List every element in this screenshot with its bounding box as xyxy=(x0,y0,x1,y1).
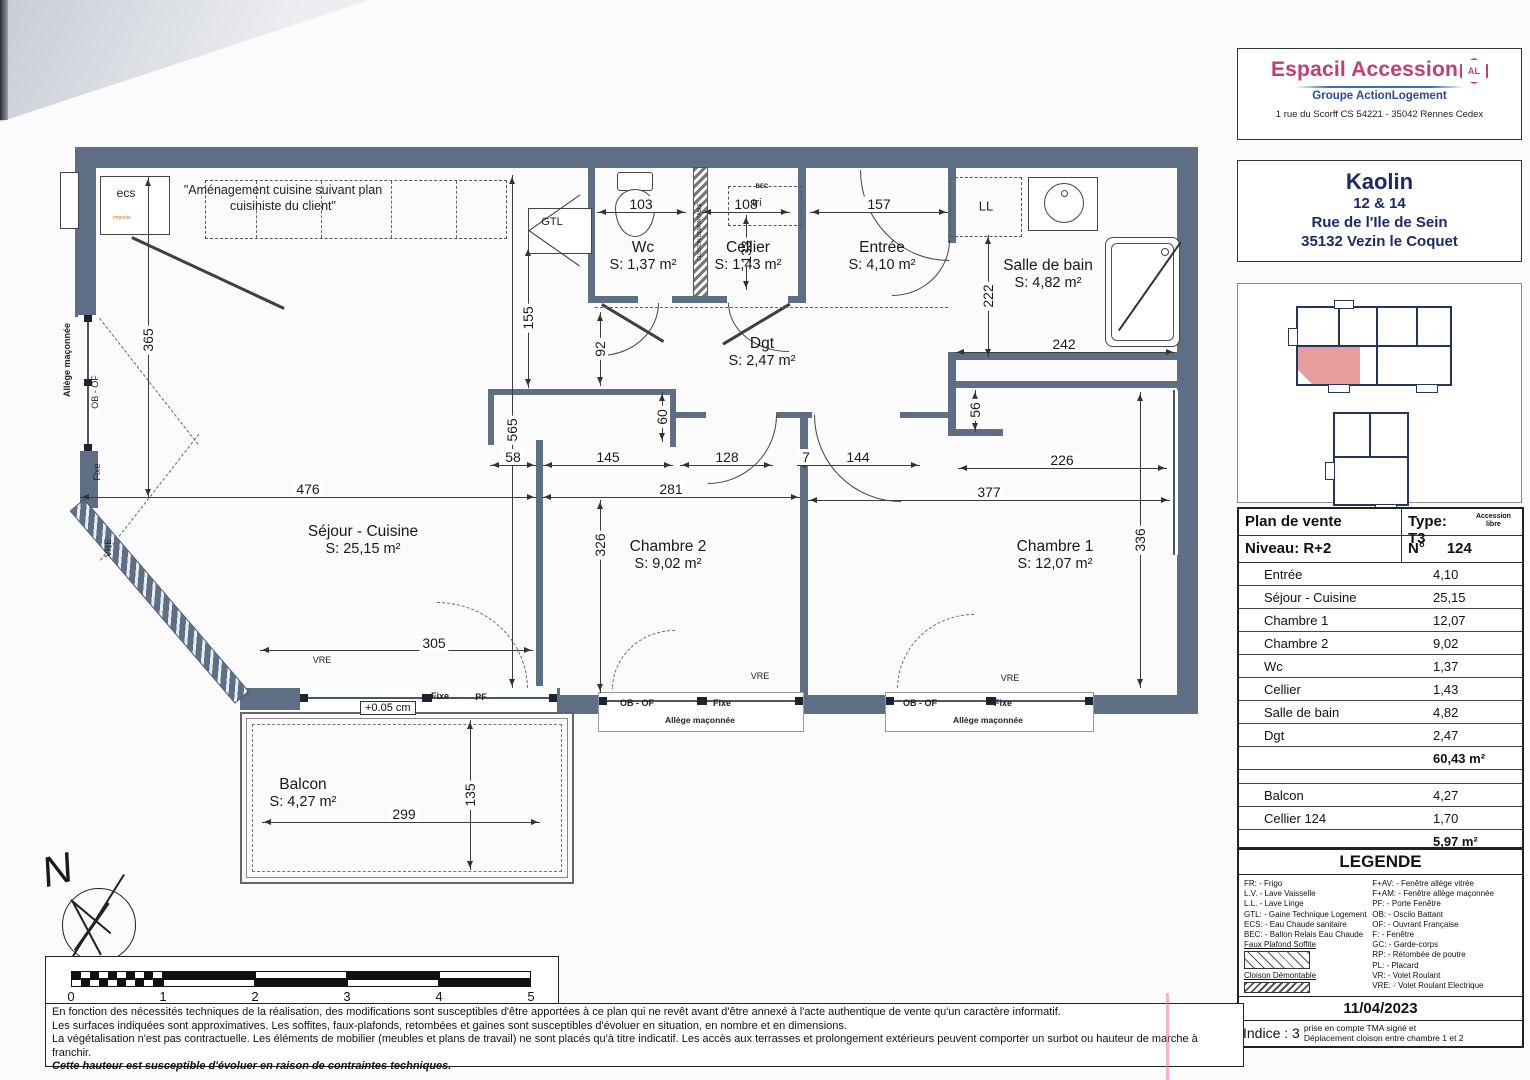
scale-tick: 2 xyxy=(251,989,258,1004)
room-label-cell: Salle de bain xyxy=(1239,705,1419,720)
legend-item: OF: - Ouvrant Française xyxy=(1372,920,1517,930)
plan-tag: OB - OF xyxy=(90,375,100,409)
room-name: Séjour - Cuisine xyxy=(308,523,418,541)
room-value-cell: 1,37 xyxy=(1419,659,1522,674)
wall-diagonal xyxy=(71,500,248,702)
legend-item: L.V. - Lave Vaisselle xyxy=(1244,889,1372,899)
door-arc-pf-chambre1 xyxy=(897,614,974,689)
dimension-line xyxy=(810,212,948,213)
room-name: Dgt xyxy=(729,335,796,353)
legend-sample-label: Cloison Démontable xyxy=(1244,971,1372,981)
table-row: Entrée4,10 xyxy=(1239,563,1522,586)
plan-tag: imposte xyxy=(113,215,131,221)
partition xyxy=(676,412,706,418)
dimension-line xyxy=(490,465,536,466)
dimension-label: 281 xyxy=(656,481,685,497)
shower-tray xyxy=(1105,237,1180,347)
room-area: S: 4,27 m² xyxy=(270,794,337,810)
legend-left-column: FR: - FrigoL.V. - Lave VaisselleL.L. - L… xyxy=(1244,879,1372,994)
dimension-line xyxy=(797,465,920,466)
compass-icon xyxy=(62,888,136,962)
legend-item: BEC: - Ballon Relais Eau Chaude xyxy=(1244,930,1372,940)
room-label: EntréeS: 4,10 m² xyxy=(849,239,916,273)
plan-tag: ecs xyxy=(117,186,136,200)
room-area: S: 25,15 m² xyxy=(308,541,418,557)
scale-tick: 5 xyxy=(527,989,534,1004)
dimension-label: 92 xyxy=(592,338,608,360)
legend-right-column: F+AV: - Fenêtre allège vitréeF+AM: - Fen… xyxy=(1372,879,1517,994)
room-label-cell: Entrée xyxy=(1239,567,1419,582)
door-leaf-ecs xyxy=(131,236,284,309)
disclaimer-line: Cette hauteur est susceptible d'évoluer … xyxy=(52,1060,1237,1074)
partition xyxy=(588,296,638,303)
dimension-label: 135 xyxy=(462,780,478,809)
disclaimer-line: Les surfaces indiquées sont approximativ… xyxy=(52,1020,1237,1034)
plan-tag: Fixe xyxy=(431,691,449,701)
revision-index: Indice : 3 xyxy=(1243,1025,1300,1041)
dimension-label: 144 xyxy=(843,449,872,465)
room-value-cell: 25,15 xyxy=(1419,590,1522,605)
plan-tag: VRE xyxy=(751,671,770,681)
dimension-label: 157 xyxy=(864,196,893,212)
dimension-label: 58 xyxy=(502,449,524,465)
room-area: S: 4,82 m² xyxy=(1003,275,1093,291)
room-label: Salle de bainS: 4,82 m² xyxy=(1003,257,1093,291)
sale-table: Plan de vente Type: T3 Accession libre N… xyxy=(1237,507,1524,849)
keyplan-highlighted-unit xyxy=(1298,346,1360,384)
north-letter: N xyxy=(37,843,78,897)
legend-item: VR: - Volet Roulant xyxy=(1372,971,1517,981)
room-label-cell: Séjour - Cuisine xyxy=(1239,590,1419,605)
plan-tag: Allège maçonnée xyxy=(953,715,1023,725)
table-row: 60,43 m² xyxy=(1239,747,1522,770)
table-row: Cellier1,43 xyxy=(1239,678,1522,701)
partition xyxy=(670,389,676,447)
dimension-line xyxy=(808,500,1170,501)
agency-group: Groupe ActionLogement xyxy=(1238,90,1521,102)
legend-item: F: - Fenêtre xyxy=(1372,930,1517,940)
dimension-line xyxy=(680,465,773,466)
scale-tick: 0 xyxy=(67,989,74,1004)
dimension-label: 299 xyxy=(389,806,418,822)
project-numbers: 12 & 14 xyxy=(1238,195,1521,214)
table-row: Salle de bain4,82 xyxy=(1239,701,1522,724)
room-value-cell: 4,10 xyxy=(1419,567,1522,582)
room-name: Wc xyxy=(610,239,677,257)
plan-tag: Fixe xyxy=(994,698,1012,708)
room-value-cell: 60,43 m² xyxy=(1419,751,1522,766)
wall xyxy=(75,147,1198,168)
gtl-closet xyxy=(528,208,592,254)
sale-table-subheader: Niveau: R+2 N° 124 xyxy=(1239,536,1522,563)
ecs-closet xyxy=(100,176,170,235)
unit-number-label: N° xyxy=(1408,540,1425,557)
dimension-label: 56 xyxy=(967,399,983,421)
plan-tag: OB - OF xyxy=(620,698,654,708)
dimension-label: 7 xyxy=(799,449,813,465)
partition xyxy=(707,296,727,303)
plan-tag: OB - OF xyxy=(903,698,937,708)
room-name: Chambre 2 xyxy=(630,538,707,556)
legend-item: L.L. - Lave Linge xyxy=(1244,899,1372,909)
table-row: Wc1,37 xyxy=(1239,655,1522,678)
partition xyxy=(672,296,707,303)
wall xyxy=(1177,147,1198,713)
plan-tag: VRE xyxy=(313,655,332,665)
partition xyxy=(948,352,1178,360)
plan-tag: VRE xyxy=(1001,673,1020,683)
agency-address: 1 rue du Scorff CS 54221 - 35042 Rennes … xyxy=(1238,109,1521,120)
room-value-cell: 4,82 xyxy=(1419,705,1522,720)
legend-title: LEGENDE xyxy=(1239,850,1522,875)
partition xyxy=(948,352,956,436)
scale-bar: 012345 xyxy=(45,956,559,1008)
dimension-line xyxy=(262,822,540,823)
door-arc-wc xyxy=(600,303,659,356)
room-value-cell: 4,27 xyxy=(1419,788,1522,803)
scale-tick: 4 xyxy=(435,989,442,1004)
soffit-hatch-swatch xyxy=(1244,951,1310,969)
legend-box: LEGENDE FR: - FrigoL.V. - Lave Vaisselle… xyxy=(1237,848,1524,1048)
project-street: Rue de l'Ile de Sein xyxy=(1238,214,1521,233)
table-row: Séjour - Cuisine25,15 xyxy=(1239,586,1522,609)
room-area: S: 9,02 m² xyxy=(630,556,707,572)
legend-item: FR: - Frigo xyxy=(1244,879,1372,889)
room-label: Séjour - CuisineS: 25,15 m² xyxy=(308,523,418,557)
level-mark: +0.05 cm xyxy=(360,701,416,715)
unit-number: 124 xyxy=(1447,540,1472,557)
floor-plan-page: "Aménagement cuisine suivant plancuisini… xyxy=(0,0,1530,1080)
room-name: Chambre 1 xyxy=(1017,538,1094,556)
legend-item: F+AV: - Fenêtre allège vitrée xyxy=(1372,879,1517,889)
room-label-cell: Dgt xyxy=(1239,728,1419,743)
dimension-label: 476 xyxy=(293,481,322,497)
room-name: Entrée xyxy=(849,239,916,257)
plan-tag: Fixe xyxy=(713,698,731,708)
plan-tag: tri xyxy=(752,197,761,209)
disclaimer-box: En fonction des nécessités techniques de… xyxy=(45,1003,1244,1067)
plan-tag: PF xyxy=(475,692,487,702)
legend-item: ECS: - Eau Chaude sanitaire xyxy=(1244,920,1372,930)
legend-item: PF: - Porte Fenêtre xyxy=(1372,899,1517,909)
revision-row: Indice : 3 prise en compte TMA signé et … xyxy=(1239,1020,1522,1045)
legend-item: VRE: - Volet Roulant Electrique xyxy=(1372,981,1517,991)
sale-table-header: Plan de vente Type: T3 Accession libre xyxy=(1239,509,1522,536)
room-label-cell: Cellier xyxy=(1239,682,1419,697)
room-area: S: 1,43 m² xyxy=(715,257,782,273)
table-row: Balcon4,27 xyxy=(1239,784,1522,807)
room-value-cell: 12,07 xyxy=(1419,613,1522,628)
dimension-line xyxy=(958,468,1167,469)
scan-fold-artifact xyxy=(0,0,380,130)
window-right xyxy=(1170,390,1178,555)
room-label-cell: Chambre 1 xyxy=(1239,613,1419,628)
legend-item: RP: - Rétombée de poutre xyxy=(1372,950,1517,960)
room-label: Chambre 1S: 12,07 m² xyxy=(1017,538,1094,572)
plan-tag: Allège maçonnée xyxy=(665,715,735,725)
room-area: S: 2,47 m² xyxy=(729,353,796,369)
room-label: WcS: 1,37 m² xyxy=(610,239,677,273)
sale-table-title: Plan de vente xyxy=(1239,509,1402,535)
agency-name: Espacil AccessionAL xyxy=(1238,58,1521,84)
sale-level: Niveau: R+2 xyxy=(1239,536,1402,562)
partition xyxy=(536,440,543,696)
window-sejour xyxy=(300,686,557,712)
room-label: BalconS: 4,27 m² xyxy=(270,776,337,810)
dimension-label: 226 xyxy=(1047,452,1076,468)
dimension-label: 365 xyxy=(140,325,156,354)
scale-tick: 3 xyxy=(343,989,350,1004)
dimension-label: 305 xyxy=(419,635,448,651)
scale-tick: 1 xyxy=(159,989,166,1004)
table-row: Chambre 29,02 xyxy=(1239,632,1522,655)
demountable-partition-swatch xyxy=(1244,982,1310,993)
dimension-line xyxy=(597,212,686,213)
duct-box xyxy=(60,172,79,229)
plan-tag: LL xyxy=(979,199,993,214)
room-label: DgtS: 2,47 m² xyxy=(729,335,796,369)
dimension-label: 222 xyxy=(980,281,996,310)
dimension-label: 103 xyxy=(626,196,655,212)
room-name: Salle de bain xyxy=(1003,257,1093,275)
legend-item: OB: - Oscilo Battant xyxy=(1372,910,1517,920)
legend-item: F+AM: - Fenêtre allège maçonnée xyxy=(1372,889,1517,899)
agency-badge-icon: AL xyxy=(1460,58,1488,84)
disclaimer-line: En fonction des nécessités techniques de… xyxy=(52,1006,1237,1020)
legend-item: PL: - Placard xyxy=(1372,961,1517,971)
partition xyxy=(488,389,494,445)
partition xyxy=(488,389,676,395)
dimension-label: 326 xyxy=(592,530,608,559)
project-name: Kaolin xyxy=(1238,169,1521,195)
room-label-cell: Chambre 2 xyxy=(1239,636,1419,651)
agency-logo-box: Espacil AccessionAL Groupe ActionLogemen… xyxy=(1237,48,1522,140)
table-row: Chambre 112,07 xyxy=(1239,609,1522,632)
scan-pink-streak xyxy=(1166,993,1169,1080)
room-name: Balcon xyxy=(270,776,337,794)
room-value-cell: 1,70 xyxy=(1419,811,1522,826)
keyplan-box xyxy=(1237,283,1522,503)
dgt-dashed-line xyxy=(595,307,948,308)
dimension-label: 60 xyxy=(654,406,670,428)
partition xyxy=(955,381,1177,388)
dimension-label: 145 xyxy=(593,449,622,465)
washbasin-counter xyxy=(1028,177,1098,231)
project-city: 35132 Vezin le Coquet xyxy=(1238,233,1521,252)
plan-tag: CLOISON DEMONTABLE xyxy=(697,203,703,261)
room-value-cell: 9,02 xyxy=(1419,636,1522,651)
door-arc-pf-chambre2 xyxy=(612,630,675,689)
partition xyxy=(900,412,948,418)
dimension-label: 128 xyxy=(712,449,741,465)
dimension-line xyxy=(260,650,533,651)
dimension-label: 377 xyxy=(974,484,1003,500)
room-label: CellierS: 1,43 m² xyxy=(715,239,782,273)
room-area: S: 12,07 m² xyxy=(1017,556,1094,572)
sale-type-note: Accession libre xyxy=(1471,513,1516,528)
revision-note-1: prise en compte TMA signé et xyxy=(1304,1023,1416,1033)
plan-tag: BEC xyxy=(756,184,769,190)
legend-item: GC: - Garde-corps xyxy=(1372,940,1517,950)
dimension-line xyxy=(702,212,790,213)
legend-item: GTL: - Gaine Technique Logement xyxy=(1244,910,1372,920)
project-box: Kaolin 12 & 14 Rue de l'Ile de Sein 3513… xyxy=(1237,160,1522,262)
dimension-label: 242 xyxy=(1049,336,1078,352)
plan-tag: VRE xyxy=(103,539,113,558)
dimension-label: 565 xyxy=(504,415,520,444)
dimension-line xyxy=(543,465,673,466)
dimension-label: 155 xyxy=(520,303,536,332)
plan-date: 11/04/2023 xyxy=(1239,996,1522,1020)
revision-note-2: Déplacement cloison entre chambre 1 et 2 xyxy=(1304,1033,1464,1043)
room-value-cell: 5,97 m² xyxy=(1419,834,1522,849)
room-name: Cellier xyxy=(715,239,782,257)
keyplan-building-2 xyxy=(1333,412,1409,506)
dimension-line xyxy=(542,497,800,498)
plan-tag: Fixe xyxy=(92,463,102,480)
room-area: S: 4,10 m² xyxy=(849,257,916,273)
plan-tag: GTL xyxy=(541,216,562,228)
partition xyxy=(788,296,806,303)
room-value-cell: 2,47 xyxy=(1419,728,1522,743)
room-area: S: 1,37 m² xyxy=(610,257,677,273)
logo-underline xyxy=(1295,86,1465,88)
room-label-cell: Cellier 124 xyxy=(1239,811,1419,826)
door-arc-pf-sejour xyxy=(437,602,528,689)
room-label-cell: Wc xyxy=(1239,659,1419,674)
scan-edge-artifact xyxy=(0,0,8,120)
kitchen-note: "Aménagement cuisine suivant plancuisini… xyxy=(168,183,398,214)
room-label: Chambre 2S: 9,02 m² xyxy=(630,538,707,572)
room-value-cell: 1,43 xyxy=(1419,682,1522,697)
room-label-cell: Balcon xyxy=(1239,788,1419,803)
table-row: Dgt2,47 xyxy=(1239,724,1522,747)
table-row xyxy=(1239,770,1522,784)
dimension-line xyxy=(600,500,601,693)
plan-tag: Allège maçonnée xyxy=(62,323,72,397)
sale-table-body: Entrée4,10Séjour - Cuisine25,15Chambre 1… xyxy=(1239,563,1522,864)
legend-sample-label: Faux Plafond Soffite xyxy=(1244,940,1372,950)
table-row: Cellier 1241,70 xyxy=(1239,807,1522,830)
disclaimer-line: La végétalisation n'est pas contractuell… xyxy=(52,1033,1237,1060)
dimension-label: 336 xyxy=(1132,525,1148,554)
keyplan-building-1 xyxy=(1296,306,1452,386)
